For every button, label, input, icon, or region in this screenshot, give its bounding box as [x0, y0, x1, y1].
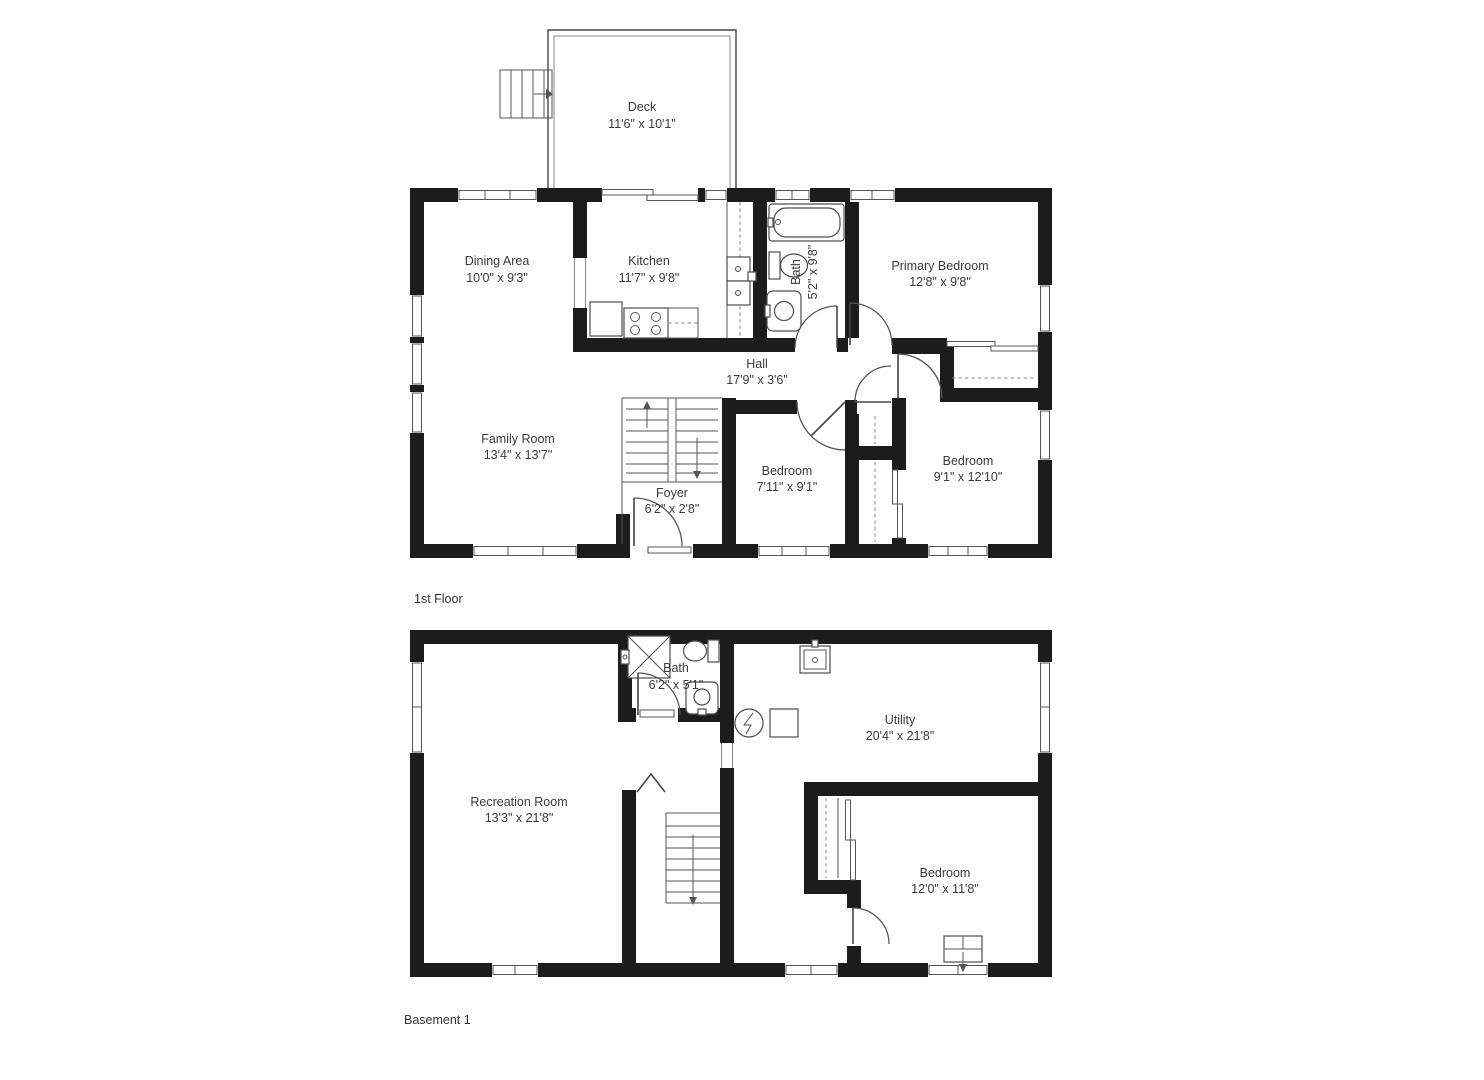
room-label-foyer: Foyer	[656, 486, 688, 500]
window	[474, 547, 576, 556]
room-dims-primary: 12'8" x 9'8"	[909, 275, 971, 289]
stairs-up-arrow	[643, 401, 651, 409]
furnace-icon	[770, 709, 798, 737]
room-label-hall: Hall	[746, 357, 768, 371]
room-dims-bedroom-basement: 12'0" x 11'8"	[911, 882, 979, 896]
room-dims-bath2: 6'2" x 5'1"	[649, 678, 704, 692]
stairs-basement	[637, 774, 720, 905]
window	[413, 296, 422, 336]
window	[759, 547, 829, 556]
floor-label-first: 1st Floor	[414, 592, 463, 606]
room-label-dining: Dining Area	[465, 254, 530, 268]
room-label-kitchen: Kitchen	[628, 254, 670, 268]
room-dims-deck: 11'6" x 10'1"	[608, 117, 676, 131]
window	[413, 344, 422, 384]
room-label-primary: Primary Bedroom	[891, 259, 988, 273]
utility-fixtures	[735, 640, 830, 737]
room-dims-bedroom-center: 7'11" x 9'1"	[757, 480, 818, 494]
basement-bath-fixtures	[621, 636, 719, 717]
basement-bedroom-door	[853, 908, 889, 944]
water-heater-icon	[735, 709, 763, 737]
window	[493, 966, 537, 975]
toilet-icon	[684, 640, 720, 662]
closet-sliding-door	[947, 342, 1038, 352]
window	[459, 191, 536, 200]
first-floor-bath-fixtures	[765, 204, 844, 331]
room-label-bath2: Bath	[663, 661, 689, 675]
stairs-down-arrow	[689, 897, 697, 905]
window	[1041, 663, 1050, 752]
sink-icon	[765, 291, 801, 331]
room-dims-dining: 10'0" x 9'3"	[466, 271, 528, 285]
window	[1041, 286, 1050, 331]
window	[413, 663, 422, 752]
room-label-utility: Utility	[885, 713, 916, 727]
sliding-deck-door	[602, 190, 698, 201]
kitchen-fixtures	[590, 202, 756, 338]
deck	[500, 30, 736, 188]
room-dims-kitchen: 11'7" x 9'8"	[619, 271, 680, 285]
first-floor-plan: Deck 11'6" x 10'1" Dining Area 10'0" x 9…	[410, 30, 1052, 606]
kitchen-sink-icon	[727, 257, 756, 305]
room-dims-recreation: 13'3" x 21'8"	[485, 811, 554, 825]
stairs-down-arrow	[693, 471, 701, 479]
floor-plan-page: Deck 11'6" x 10'1" Dining Area 10'0" x 9…	[0, 0, 1484, 1080]
floor-label-basement: Basement 1	[404, 1013, 471, 1027]
refrigerator-icon	[590, 302, 622, 336]
window	[786, 966, 837, 975]
room-dims-bath1: 5'2" x 9'8"	[806, 245, 820, 300]
room-dims-family: 13'4" x 13'7"	[484, 448, 553, 462]
room-label-bedroom-right: Bedroom	[943, 454, 994, 468]
room-label-recreation: Recreation Room	[470, 795, 567, 809]
room-dims-foyer: 6'2" x 2'8"	[645, 502, 700, 516]
floor-plan-canvas: Deck 11'6" x 10'1" Dining Area 10'0" x 9…	[0, 0, 1484, 1080]
room-label-family: Family Room	[481, 432, 555, 446]
stove-icon	[624, 308, 698, 338]
room-dims-utility: 20'4" x 21'8"	[866, 729, 935, 743]
basement-plan: Bath 6'2" x 5'1" Utility 20'4" x 21'8" R…	[404, 630, 1052, 1027]
bathtub-icon	[768, 204, 844, 241]
room-dims-hall: 17'9" x 3'6"	[726, 373, 788, 387]
stairs-open-door	[637, 774, 665, 792]
window	[851, 191, 894, 200]
closet-sliding-door	[893, 470, 903, 538]
room-label-deck: Deck	[628, 100, 657, 114]
closet-sliding-door	[846, 800, 856, 880]
stairs-first-floor	[622, 398, 722, 544]
room-label-bedroom-basement: Bedroom	[920, 866, 971, 880]
window	[706, 191, 726, 200]
deck-stairs-icon	[500, 70, 553, 118]
laundry-sink-icon	[800, 640, 830, 673]
window	[929, 547, 987, 556]
window	[1041, 411, 1050, 459]
room-dims-bedroom-right: 9'1" x 12'10"	[934, 470, 1003, 484]
bedroom-center-door	[797, 402, 845, 450]
bedroom-right-door	[898, 354, 942, 398]
room-label-bedroom-center: Bedroom	[762, 464, 813, 478]
window	[929, 966, 987, 975]
window	[413, 393, 422, 432]
window	[776, 191, 809, 200]
room-label-bath1: Bath	[789, 259, 803, 285]
hall-closet-door	[855, 366, 891, 402]
